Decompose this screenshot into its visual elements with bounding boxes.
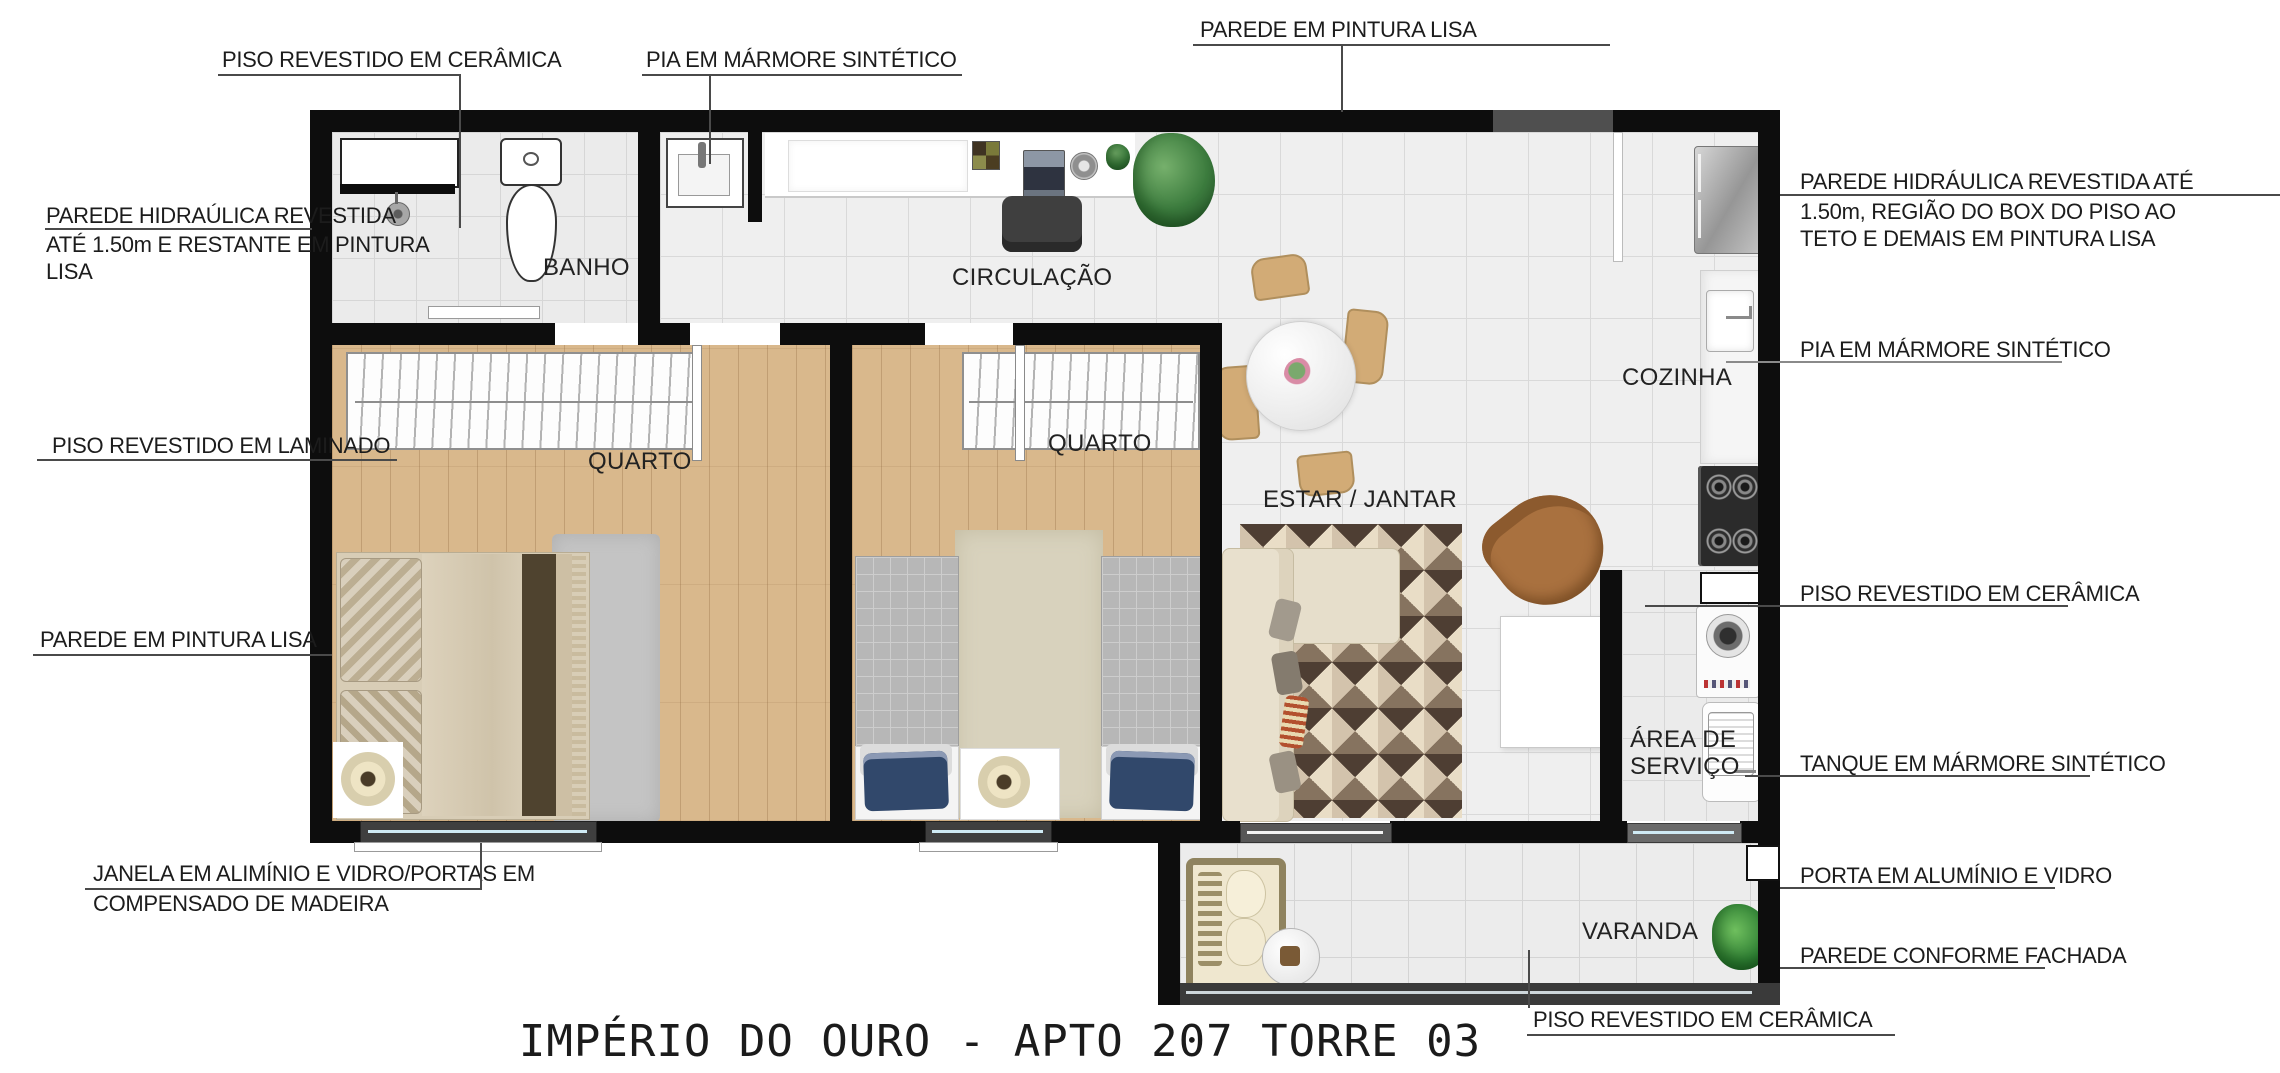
leader-line	[480, 843, 482, 890]
callout-line: PAREDE HIDRAÚLICA REVESTIDA	[46, 202, 430, 229]
callout-pia-top: PIA EM MÁRMORE SINTÉTICO	[646, 46, 957, 73]
bath-shelf-icon	[428, 306, 540, 319]
bedroom1-door-gap	[690, 323, 780, 345]
room-label-area-servico-line2: SERVIÇO	[1630, 753, 1740, 780]
leader-line	[459, 74, 461, 228]
stove-burner-icon	[1706, 474, 1732, 500]
single-bed-icon	[1101, 556, 1205, 748]
wall-sink-niche	[748, 132, 762, 222]
room-label-circulacao: CIRCULAÇÃO	[952, 264, 1112, 291]
callout-porta: PORTA EM ALUMÍNIO E VIDRO	[1800, 862, 2112, 889]
wall-bedroom2-top	[1013, 323, 1222, 345]
callout-parede-hidraulica-left: PAREDE HIDRAÚLICA REVESTIDA ATÉ 1.50m E …	[46, 202, 430, 285]
door-leaf	[692, 345, 702, 461]
wall-bottom	[310, 821, 360, 843]
pouf-icon	[341, 752, 395, 806]
room-label-area-servico-line1: ÁREA DE	[1630, 726, 1740, 753]
stove-burner-icon	[1706, 528, 1732, 554]
wardrobe-icon	[346, 352, 702, 450]
wall-top-facade-segment	[1493, 110, 1613, 132]
callout-piso-laminado: PISO REVESTIDO EM LAMINADO	[52, 432, 390, 459]
callout-line: ATÉ 1.50m E RESTANTE EM PINTURA	[46, 231, 430, 258]
wall-bottom	[1390, 821, 1602, 843]
service-glass-door-glass	[1633, 831, 1734, 834]
living-sliding-door-glass	[1247, 831, 1383, 834]
callout-line: PAREDE HIDRÁULICA REVESTIDA ATÉ	[1800, 168, 2193, 195]
bedroom1-window-glass	[368, 830, 587, 833]
wall-bedroom1-top	[780, 323, 852, 345]
fridge-handle-icon	[1698, 200, 1701, 238]
callout-piso-ceramica-top: PISO REVESTIDO EM CERÂMICA	[222, 46, 561, 73]
leader-line	[37, 459, 397, 461]
fridge-handle-icon	[1698, 154, 1701, 192]
toilet-button-icon	[523, 152, 539, 166]
leader-line	[1341, 44, 1343, 112]
pouf-icon	[978, 756, 1030, 808]
page-title: IMPÉRIO DO OURO - APTO 207 TORRE 03	[0, 1016, 2000, 1067]
wall-bathroom-right	[638, 132, 660, 345]
blue-pillow-icon	[1109, 751, 1195, 812]
wall-bedroom2-living	[1200, 345, 1222, 821]
office-chair-icon	[1002, 196, 1082, 252]
callout-parede-pintura-left: PAREDE EM PINTURA LISA	[40, 626, 317, 653]
kitchen-sink-icon	[1706, 290, 1754, 352]
room-label-cozinha: COZINHA	[1622, 364, 1732, 391]
dining-chair-top-icon	[1249, 252, 1310, 301]
floorplan-canvas: BANHO CIRCULAÇÃO QUARTO QUARTO ESTAR / J…	[0, 0, 2280, 1073]
stove-burner-icon	[1732, 528, 1758, 554]
callout-pia-right: PIA EM MÁRMORE SINTÉTICO	[1800, 336, 2111, 363]
leader-line	[1780, 887, 2055, 889]
callout-line: JANELA EM ALIMÍNIO E VIDRO/PORTAS EM	[93, 860, 535, 887]
callout-parede-hidraulica-right: PAREDE HIDRÁULICA REVESTIDA ATÉ 1.50m, R…	[1800, 168, 2193, 252]
callout-line: LISA	[46, 258, 430, 285]
bed-runner-icon	[522, 554, 556, 816]
leader-line	[218, 74, 461, 76]
washer-controls-icon	[1704, 680, 1750, 688]
leader-line	[709, 74, 711, 164]
balcony-armchair-cushion-icon	[1226, 870, 1266, 918]
kitchen-divider-line	[1613, 132, 1623, 262]
desk-plant-icon	[1106, 144, 1130, 170]
desk-tray-icon	[788, 140, 968, 192]
callout-tanque: TANQUE EM MÁRMORE SINTÉTICO	[1800, 750, 2166, 777]
fridge-icon	[1694, 146, 1760, 254]
leader-line	[33, 654, 332, 656]
callout-piso-ceramica-right: PISO REVESTIDO EM CERÂMICA	[1800, 580, 2139, 607]
balcony-corner	[1158, 983, 1180, 1005]
room-label-area-servico: ÁREA DE SERVIÇO	[1630, 726, 1740, 780]
balcony-column-box	[1746, 845, 1780, 881]
spice-box-icon	[972, 141, 1000, 170]
leader-line	[1645, 605, 2068, 607]
leader-line	[1726, 361, 2062, 363]
leader-line	[1780, 967, 2045, 969]
leader-line	[45, 228, 312, 230]
door-leaf	[1015, 345, 1025, 461]
callout-line: COMPENSADO DE MADEIRA	[93, 890, 535, 917]
bed-pillow-icon	[340, 558, 422, 682]
blue-pillow-icon	[863, 751, 949, 812]
bedroom2-window-glass	[932, 830, 1043, 833]
wall-bottom	[595, 821, 925, 843]
laptop-icon	[1023, 150, 1065, 198]
bed-blanket-icon	[422, 554, 522, 816]
wall-bathroom-bottom	[310, 323, 555, 345]
leader-line	[642, 74, 962, 76]
balcony-facade-line	[1186, 991, 1752, 994]
window-sill	[919, 842, 1058, 852]
window-sill	[354, 842, 602, 852]
wall-balcony-left	[1158, 843, 1180, 1005]
room-label-banho: BANHO	[543, 254, 630, 281]
bedroom2-door-gap	[925, 323, 1013, 345]
side-table-decor-icon	[1280, 946, 1300, 966]
callout-parede-fachada: PAREDE CONFORME FACHADA	[1800, 942, 2126, 969]
wall-service-left	[1600, 570, 1622, 843]
wall-bedroom2-top	[852, 323, 925, 345]
balcony-armchair-pillow-icon	[1198, 872, 1222, 966]
sideboard-icon	[1500, 616, 1606, 748]
leader-line	[1193, 44, 1610, 46]
leader-line	[1745, 775, 2090, 777]
single-bed-icon	[855, 556, 959, 748]
hall-sink-faucet-icon	[698, 142, 706, 168]
callout-line: TETO E DEMAIS EM PINTURA LISA	[1800, 225, 2193, 252]
wall-between-bedrooms	[830, 345, 852, 821]
callout-parede-pintura-top: PAREDE EM PINTURA LISA	[1200, 16, 1477, 43]
bed-fringe-icon	[572, 554, 586, 816]
balcony-facade-wall	[1158, 983, 1780, 1005]
washer-door-icon	[1706, 614, 1750, 658]
kitchen-cabinet-icon	[1700, 572, 1760, 604]
room-label-quarto1: QUARTO	[588, 448, 692, 475]
leader-line	[1528, 950, 1530, 1008]
wall-bottom	[1740, 821, 1758, 843]
callout-line: 1.50m, REGIÃO DO BOX DO PISO AO	[1800, 198, 2193, 225]
bed-edge-icon	[556, 554, 572, 816]
monstera-plant-icon	[1133, 133, 1215, 227]
balcony-armchair-cushion-icon	[1226, 918, 1266, 966]
leader-line	[1780, 194, 2280, 196]
kitchen-faucet-icon	[1749, 306, 1752, 319]
room-label-varanda: VARANDA	[1582, 918, 1698, 945]
leader-line	[85, 888, 482, 890]
stove-burner-icon	[1732, 474, 1758, 500]
table-flowers-icon	[1284, 358, 1316, 390]
room-label-estar-jantar: ESTAR / JANTAR	[1263, 486, 1457, 513]
bathroom-door-gap	[555, 323, 645, 345]
shower-box-icon	[340, 138, 459, 188]
wall-bottom	[1050, 821, 1240, 843]
desk-lamp-icon	[1070, 152, 1098, 180]
room-label-quarto2: QUARTO	[1048, 430, 1152, 457]
